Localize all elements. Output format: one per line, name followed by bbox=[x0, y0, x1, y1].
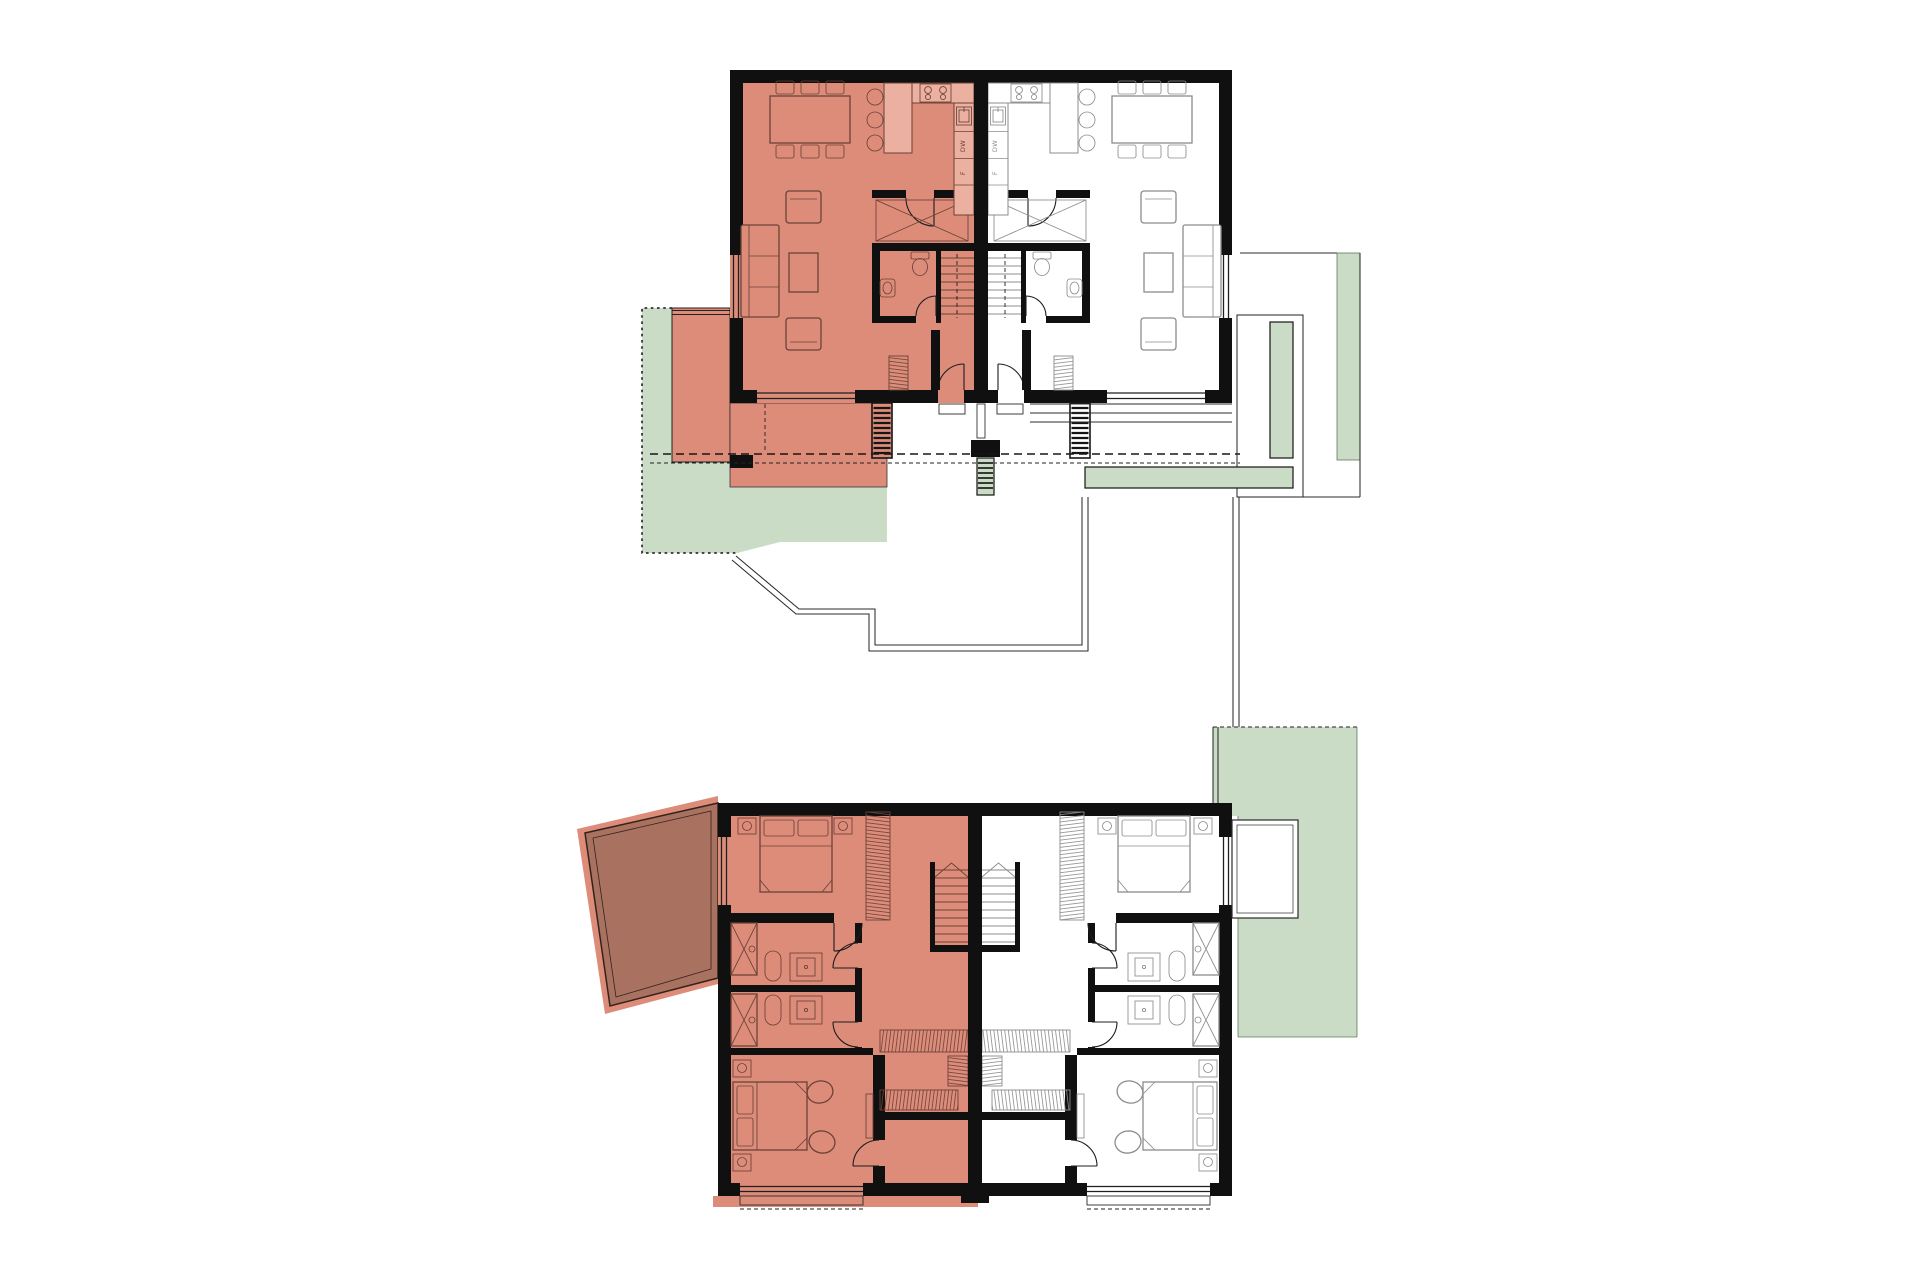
upper-unit-b bbox=[975, 803, 1232, 1209]
garden-steps-ladder bbox=[977, 458, 994, 495]
terrace-pier bbox=[730, 455, 753, 468]
pergola-ladder bbox=[872, 403, 892, 458]
planter-horizontal bbox=[1085, 467, 1293, 488]
armchair bbox=[786, 318, 821, 350]
hedge-strip bbox=[1337, 253, 1360, 460]
balcony-unit-a bbox=[577, 796, 718, 1014]
wardrobe bbox=[866, 812, 890, 920]
dishwasher-label-a: DW bbox=[959, 140, 967, 152]
ground-unit-b bbox=[981, 70, 1232, 458]
sofa bbox=[741, 225, 779, 317]
party-wall bbox=[968, 803, 982, 1196]
duplex-floor-plans: DW F DW F bbox=[0, 0, 1920, 1280]
upper-unit-a bbox=[718, 803, 975, 1209]
coat-closet bbox=[889, 356, 908, 390]
planter-vertical bbox=[1270, 322, 1293, 458]
fridge-label-a: F bbox=[959, 171, 967, 175]
armchair bbox=[786, 191, 821, 223]
double-bed bbox=[733, 1082, 807, 1150]
balcony-unit-b bbox=[1232, 820, 1298, 918]
double-bed bbox=[760, 816, 832, 892]
floor-plan-sheet: DW F DW F bbox=[0, 0, 1920, 1280]
upper-floor-plan bbox=[577, 727, 1357, 1209]
party-wall bbox=[974, 70, 988, 403]
ground-unit-a bbox=[730, 70, 981, 458]
porch-divider bbox=[977, 404, 985, 438]
fridge-label-b: F bbox=[991, 171, 999, 175]
kitchen-island bbox=[867, 83, 912, 153]
ground-floor-plan: DW F DW F bbox=[642, 70, 1360, 727]
dishwasher-label-b: DW bbox=[991, 140, 999, 152]
party-wall-pier bbox=[961, 1183, 989, 1203]
